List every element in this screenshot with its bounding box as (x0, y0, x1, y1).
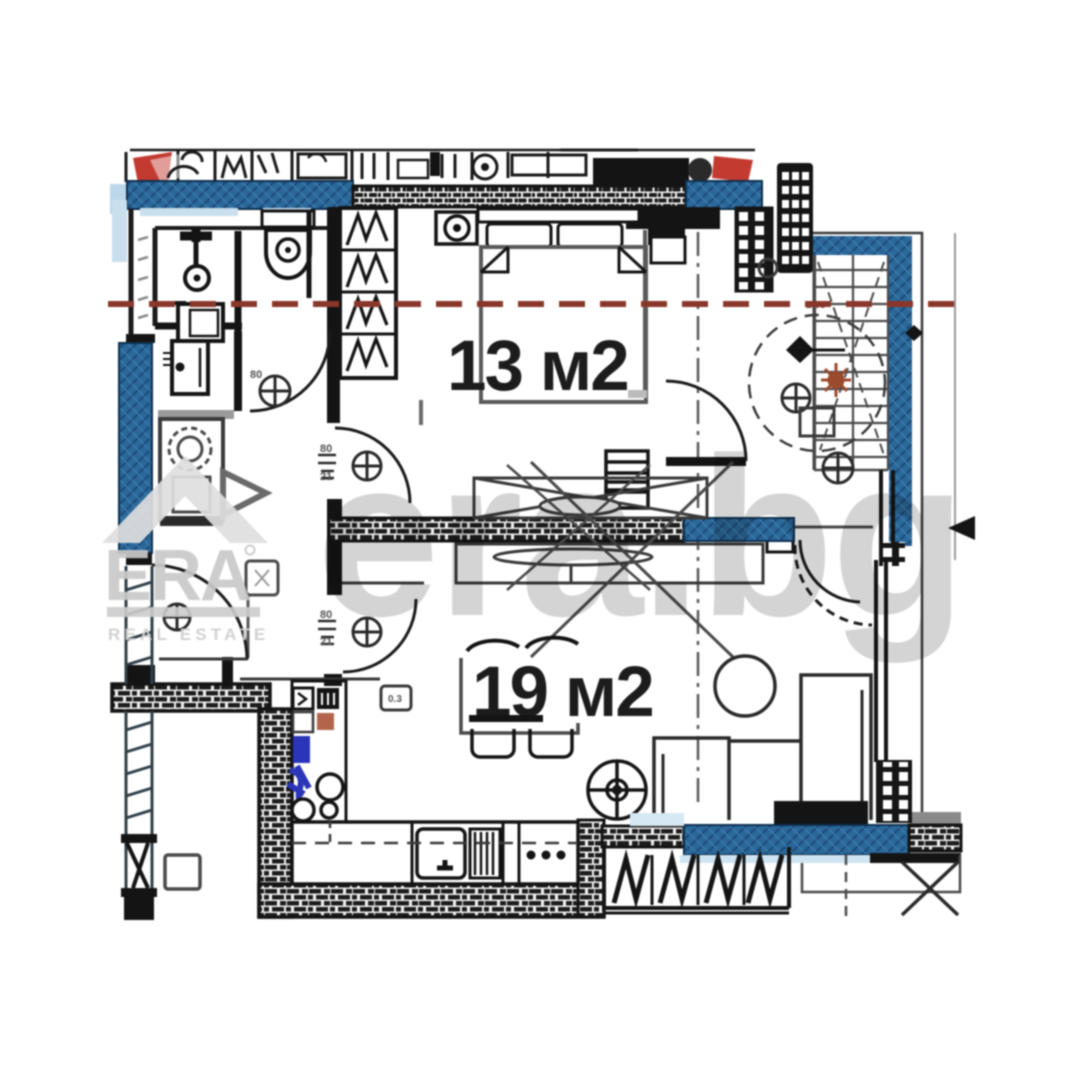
svg-text:0.3: 0.3 (388, 694, 402, 705)
svg-text:80: 80 (250, 369, 262, 381)
svg-text:13 м2: 13 м2 (447, 327, 628, 406)
svg-text:era.bg: era.bg (316, 411, 963, 664)
svg-text:ERA: ERA (104, 536, 251, 616)
svg-text:REAL ESTATE: REAL ESTATE (108, 625, 269, 644)
